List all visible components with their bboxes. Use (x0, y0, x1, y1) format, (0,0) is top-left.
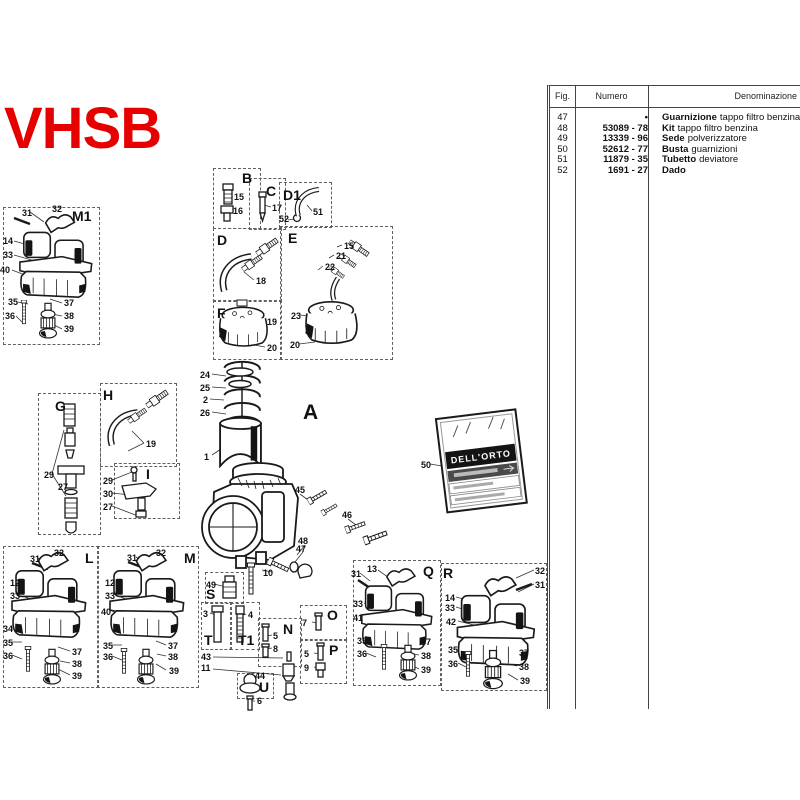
part-callout-38: 38 (72, 660, 82, 669)
part-callout-52: 52 (279, 215, 289, 224)
part-callout-31: 31 (127, 554, 137, 563)
part-callout-23: 23 (291, 312, 301, 321)
part-callout-2: 2 (203, 396, 208, 405)
section-box-o (300, 605, 347, 640)
part-callout-3: 3 (203, 610, 208, 619)
part-callout-37: 37 (64, 299, 74, 308)
part-callout-6: 6 (257, 697, 262, 706)
part-callout-27: 27 (103, 503, 113, 512)
denominazione-detail: deviatore (699, 154, 738, 165)
part-callout-38: 38 (64, 312, 74, 321)
cell-denominazione: Tubettodeviatore (656, 155, 800, 166)
part-callout-16: 16 (233, 207, 243, 216)
section-letter-t1: T1 (238, 632, 254, 648)
denominazione-keyword: Sede (662, 133, 685, 144)
carb-body (202, 463, 298, 568)
part-callout-45: 45 (295, 486, 305, 495)
part-callout-32: 32 (54, 549, 64, 558)
part-callout-8: 8 (273, 645, 278, 654)
denominazione-detail: tappo filtro benzina (678, 123, 758, 134)
section-box-r (441, 563, 547, 691)
part-callout-17: 17 (272, 204, 282, 213)
part-callout-39: 39 (520, 677, 530, 686)
table-divider (648, 86, 649, 709)
denominazione-keyword: Kit (662, 123, 675, 134)
part-callout-39: 39 (169, 667, 179, 676)
denominazione-keyword: Busta (662, 144, 688, 155)
section-letter-c: C (266, 183, 276, 199)
part-callout-33: 33 (3, 251, 13, 260)
denominazione-keyword: Tubetto (662, 154, 696, 165)
part-callout-30: 30 (103, 490, 113, 499)
section-box-p (300, 640, 347, 684)
section-letter-p: P (329, 642, 338, 658)
part-callout-14: 14 (445, 594, 455, 603)
part-callout-51: 51 (313, 208, 323, 217)
cell-fig: 52 (550, 166, 575, 177)
part-callout-50: 50 (421, 461, 431, 470)
section-letter-t: T (204, 632, 213, 648)
part-callout-39: 39 (64, 325, 74, 334)
part-callout-33: 33 (353, 600, 363, 609)
part-callout-44: 44 (255, 672, 265, 681)
section-box-l (3, 546, 99, 688)
section-letter-m1: M1 (72, 208, 91, 224)
part-callout-21: 21 (336, 252, 346, 261)
part-callout-40: 40 (101, 608, 111, 617)
cell-numero: • (575, 113, 656, 124)
table-row: 521691 - 27Dado (550, 166, 800, 177)
cell-denominazione: Dado (656, 166, 800, 177)
page-title: VHSB (4, 100, 161, 158)
part-callout-32: 32 (535, 567, 545, 576)
denominazione-keyword: Dado (662, 165, 686, 176)
section-letter-b: B (242, 170, 252, 186)
part-callout-38: 38 (519, 663, 529, 672)
part-callout-27: 27 (58, 483, 68, 492)
section-letter-f: F (217, 305, 226, 321)
section-box-g (38, 393, 101, 535)
parts-table: Fig. Numero Denominazione 47•Guarnizione… (547, 85, 800, 709)
section-letter-q: Q (423, 563, 434, 579)
part-callout-10: 10 (263, 569, 273, 578)
cell-numero: 13339 - 96 (575, 134, 656, 145)
table-divider (575, 86, 576, 709)
part-callout-29: 29 (44, 471, 54, 480)
cell-numero: 11879 - 35 (575, 155, 656, 166)
part-callout-35: 35 (357, 637, 367, 646)
part-callout-35: 35 (448, 646, 458, 655)
part-callout-37: 37 (421, 638, 431, 647)
denominazione-detail: polverizzatore (688, 133, 747, 144)
section-letter-o: O (327, 607, 338, 623)
part-callout-11: 11 (201, 664, 211, 673)
part-callout-9: 9 (304, 664, 309, 673)
bag-brand-label: DELL'ORTO (450, 448, 511, 465)
part-callout-31: 31 (351, 570, 361, 579)
part-callout-1: 1 (204, 453, 209, 462)
part-callout-47: 47 (296, 545, 306, 554)
cell-fig: 47 (550, 113, 575, 124)
part-callout-35: 35 (3, 639, 13, 648)
table-row: 5111879 - 35Tubettodeviatore (550, 155, 800, 166)
section-letter-e: E (288, 230, 297, 246)
denominazione-detail: tappo filtro benzina (720, 112, 800, 123)
part-callout-25: 25 (200, 384, 210, 393)
cell-numero: 1691 - 27 (575, 166, 656, 177)
part-callout-37: 37 (168, 642, 178, 651)
part-callout-35: 35 (8, 298, 18, 307)
section-letter-h: H (103, 387, 113, 403)
part-callout-31: 31 (535, 581, 545, 590)
part-callout-35: 35 (103, 642, 113, 651)
part-callout-37: 37 (519, 649, 529, 658)
col-numero: Numero (575, 91, 648, 101)
section-letter-d: D (217, 232, 227, 248)
table-row: 4913339 - 96Sedepolverizzatore (550, 134, 800, 145)
catalog-page: VHSB A (0, 0, 800, 800)
section-letter-m: M (184, 550, 196, 566)
part-callout-12: 12 (105, 579, 115, 588)
part-callout-4: 4 (248, 611, 253, 620)
denominazione-detail: guarnizioni (691, 144, 737, 155)
col-fig: Fig. (550, 91, 575, 101)
section-letter-r: R (443, 565, 453, 581)
part-callout-14: 14 (3, 237, 13, 246)
part-callout-38: 38 (421, 652, 431, 661)
section-letter-d1: D1 (283, 187, 301, 203)
section-letter-n: N (283, 621, 293, 637)
part-callout-42: 42 (446, 618, 456, 627)
part-callout-15: 15 (234, 193, 244, 202)
part-callout-24: 24 (200, 371, 210, 380)
part-callout-49: 49 (206, 581, 216, 590)
part-callout-18: 18 (256, 277, 266, 286)
section-letter-g: G (55, 398, 66, 414)
part-callout-15: 15 (344, 242, 354, 251)
part-callout-29: 29 (103, 477, 113, 486)
part-callout-36: 36 (3, 652, 13, 661)
cell-fig: 51 (550, 155, 575, 166)
part-callout-5: 5 (273, 632, 278, 641)
part-callout-36: 36 (448, 660, 458, 669)
part-callout-40: 40 (0, 266, 10, 275)
part-callout-37: 37 (72, 648, 82, 657)
section-box-n (258, 618, 302, 667)
assembly-a-slide (220, 362, 261, 466)
part-callout-20: 20 (267, 344, 277, 353)
part-callout-33: 33 (105, 592, 115, 601)
col-denominazione: Denominazione (648, 91, 800, 101)
part-callout-31: 31 (30, 555, 40, 564)
part-callout-33: 33 (445, 604, 455, 613)
part-callout-36: 36 (103, 653, 113, 662)
section-letter-u: U (259, 679, 269, 695)
table-body: 47•Guarnizionetappo filtro benzina485308… (550, 113, 800, 176)
part-callout-7: 7 (302, 619, 307, 628)
part-callout-19: 19 (267, 318, 277, 327)
part-callout-26: 26 (200, 409, 210, 418)
part-callout-46: 46 (342, 511, 352, 520)
denominazione-keyword: Guarnizione (662, 112, 717, 123)
screw-10 (248, 563, 255, 594)
part-callout-39: 39 (72, 672, 82, 681)
part-callout-43: 43 (201, 653, 211, 662)
main-area-label: A (303, 401, 318, 425)
part-callout-19: 19 (146, 440, 156, 449)
part-callout-39: 39 (421, 666, 431, 675)
part-callout-36: 36 (357, 650, 367, 659)
table-header-rule (550, 107, 800, 108)
section-letter-i: I (146, 466, 150, 482)
table-row: 47•Guarnizionetappo filtro benzina (550, 113, 800, 124)
part-callout-32: 32 (52, 205, 62, 214)
section-letter-l: L (85, 550, 94, 566)
part-callout-41: 41 (353, 614, 363, 623)
part-callout-31: 31 (22, 209, 32, 218)
section-box-m (97, 546, 199, 688)
gasket-bag: DELL'ORTO (436, 409, 527, 512)
part-callout-33: 33 (10, 592, 20, 601)
section-box-m1 (3, 207, 100, 345)
part-callout-12: 12 (10, 579, 20, 588)
table-header: Fig. Numero Denominazione (550, 91, 800, 101)
part-callout-34: 34 (3, 625, 13, 634)
part-callout-20: 20 (290, 341, 300, 350)
part-callout-22: 22 (325, 263, 335, 272)
part-callout-36: 36 (5, 312, 15, 321)
part-callout-32: 32 (156, 549, 166, 558)
part-callout-38: 38 (168, 653, 178, 662)
cell-fig: 49 (550, 134, 575, 145)
part-callout-5: 5 (304, 650, 309, 659)
part-callout-13: 13 (367, 565, 377, 574)
